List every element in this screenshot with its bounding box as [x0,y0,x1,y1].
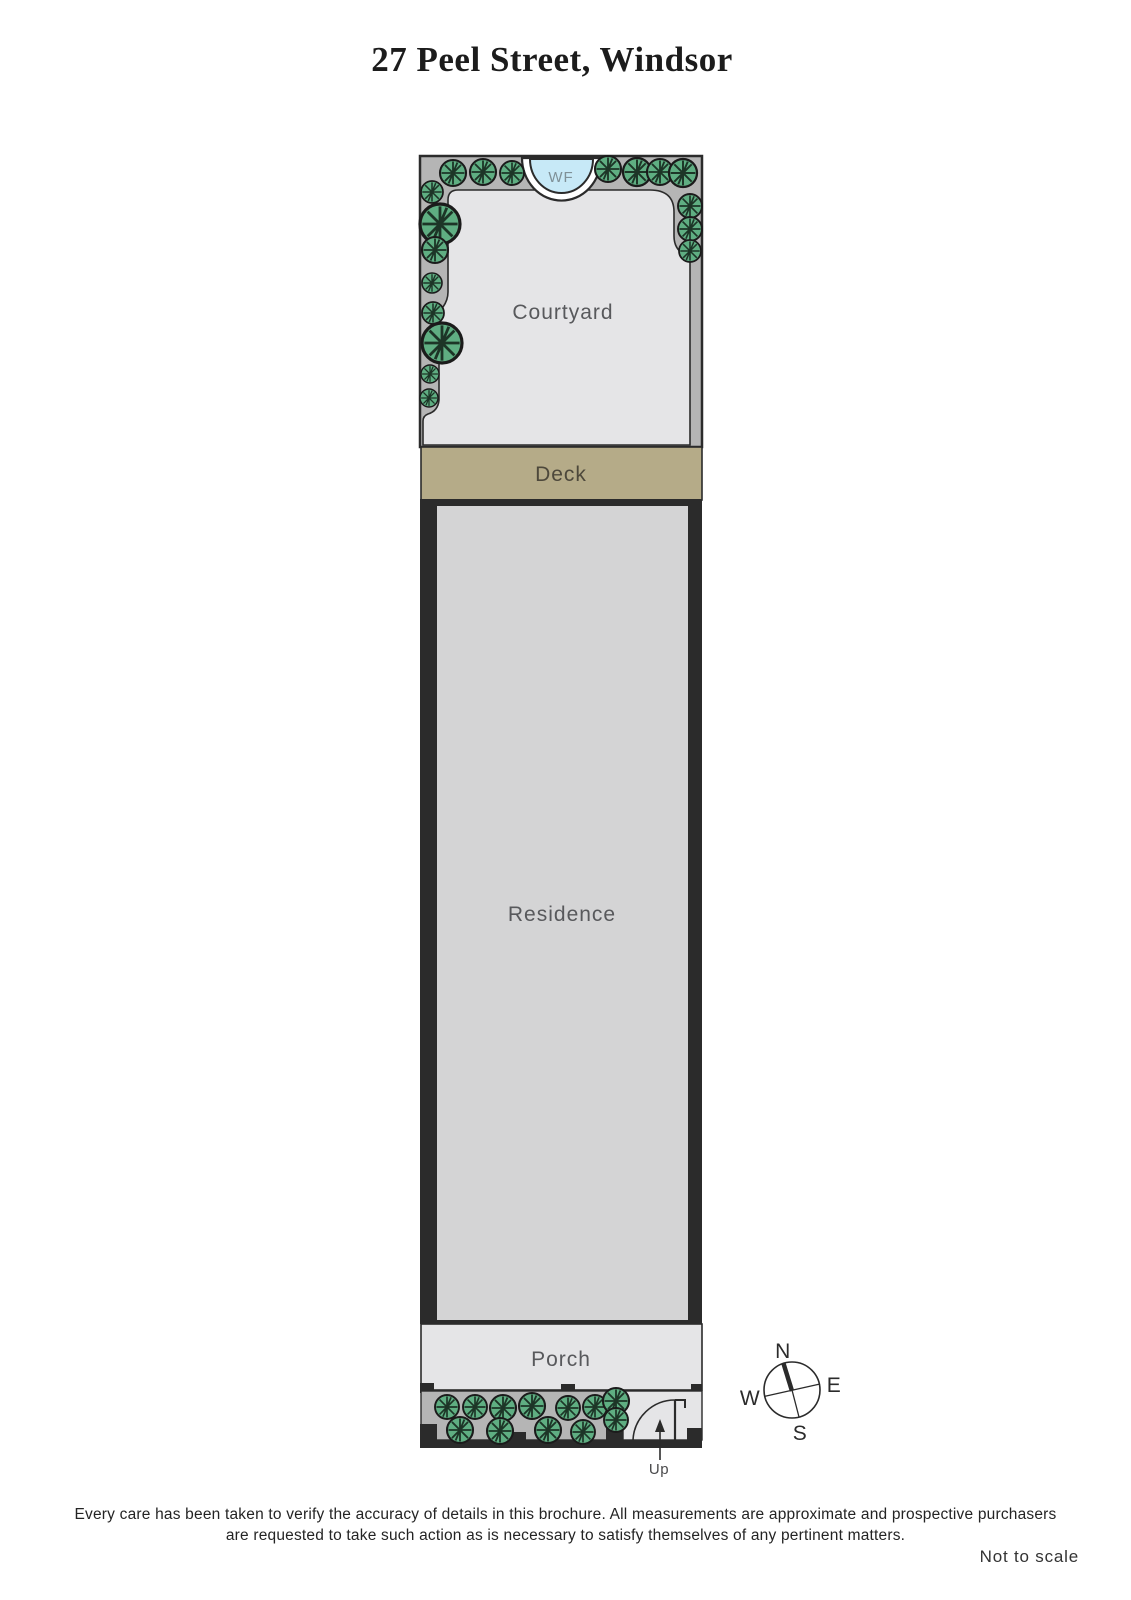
up-label: Up [649,1461,669,1478]
water-feature-label: WF [548,169,573,186]
tree-icon [490,1395,516,1421]
courtyard-label: Courtyard [512,301,613,324]
tree-icon [500,161,524,185]
deck-label: Deck [535,463,587,486]
tree-icon [422,273,442,293]
tree-icon [421,365,439,383]
brochure-page: 27 Peel Street, Windsor WF Courtyard [0,0,1131,1600]
tree-icon [669,159,697,187]
tree-icon [422,323,462,363]
fence-post [420,1424,437,1442]
compass-south-label: S [793,1422,808,1445]
tree-icon [420,389,438,407]
tree-icon [463,1395,487,1419]
tree-icon [447,1417,473,1443]
scale-note: Not to scale [980,1547,1079,1567]
tree-icon [595,156,621,182]
floor-plan: WF Courtyard Deck [0,0,1131,1600]
compass-north-label: N [775,1340,791,1363]
tree-icon [440,160,466,186]
tree-icon [604,1408,628,1432]
tree-icon [421,181,443,203]
residence-label: Residence [508,903,616,926]
tree-icon [571,1420,595,1444]
tree-icon [470,159,496,185]
compass-east-label: E [827,1374,842,1397]
porch-label: Porch [531,1348,591,1371]
fence-post [687,1428,702,1442]
tree-icon [678,194,702,218]
tree-icon [519,1393,545,1419]
tree-icon [487,1418,513,1444]
disclaimer-line-1: Every care has been taken to verify the … [0,1506,1131,1524]
tree-icon [679,240,701,262]
tree-icon [678,217,702,241]
tree-icon [556,1396,580,1420]
tree-icon [422,237,448,263]
disclaimer-line-2: are requested to take such action as is … [0,1527,1131,1545]
tree-icon [435,1395,459,1419]
tree-icon [422,302,444,324]
tree-icon [535,1417,561,1443]
compass-west-label: W [740,1387,760,1410]
compass-rose: N E W S [740,1340,841,1445]
